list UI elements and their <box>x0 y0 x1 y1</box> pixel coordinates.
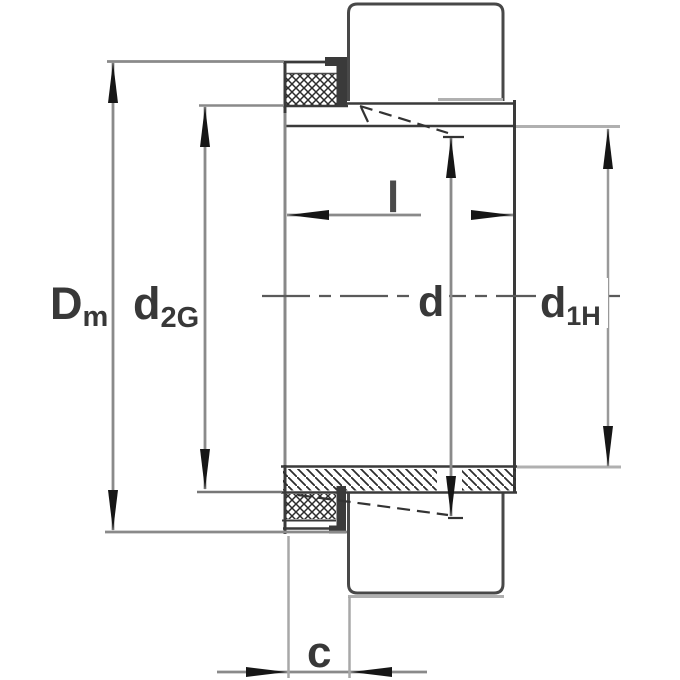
taper-dashed-line-top <box>360 106 448 133</box>
label-c: c <box>307 628 331 677</box>
lock-washer-upper-section <box>283 57 348 107</box>
locknut-upper-body <box>349 4 504 101</box>
sleeve-lower-section <box>282 469 516 534</box>
dimension-labels: Dm d2G l d d1H c <box>50 173 601 677</box>
washer-locking-tab-upper <box>337 57 348 107</box>
sleeve-object-lines <box>281 62 517 534</box>
sleeve-wall-hatch-right <box>462 469 516 491</box>
dimension-arrows <box>108 62 613 677</box>
arrow-d-down <box>446 476 456 517</box>
arrow-l-right <box>471 210 512 220</box>
label-l: l <box>387 173 399 222</box>
label-d: d <box>418 278 444 326</box>
arrow-c-inward-right <box>351 667 392 677</box>
washer-tab-notch-upper <box>325 57 338 66</box>
label-Dm: Dm <box>50 278 108 333</box>
arrow-Dm-up <box>108 62 118 103</box>
arrow-d2G-up <box>200 106 210 147</box>
locknut-lower-body <box>349 493 504 594</box>
thread-crosshatch-lower <box>286 494 336 519</box>
arrow-Dm-down <box>108 490 118 531</box>
arrow-c-inward-left <box>246 667 287 677</box>
dimension-lines <box>105 62 608 679</box>
thread-crosshatch-upper <box>286 74 337 105</box>
locknut-upper-outline <box>349 4 504 101</box>
sleeve-wall-hatch-left <box>283 469 437 491</box>
locknut-lower-outline <box>349 493 504 594</box>
arrow-d2G-down <box>200 449 210 490</box>
adapter-sleeve-drawing: Dm d2G l d d1H c <box>0 0 680 680</box>
arrow-d1H-down <box>603 426 613 467</box>
arrow-d-up <box>446 137 456 178</box>
arrow-d1H-up <box>603 128 613 169</box>
drawing-canvas: Dm d2G l d d1H c <box>0 0 680 680</box>
label-d2G: d2G <box>133 278 199 334</box>
arrow-l-left <box>288 210 329 220</box>
